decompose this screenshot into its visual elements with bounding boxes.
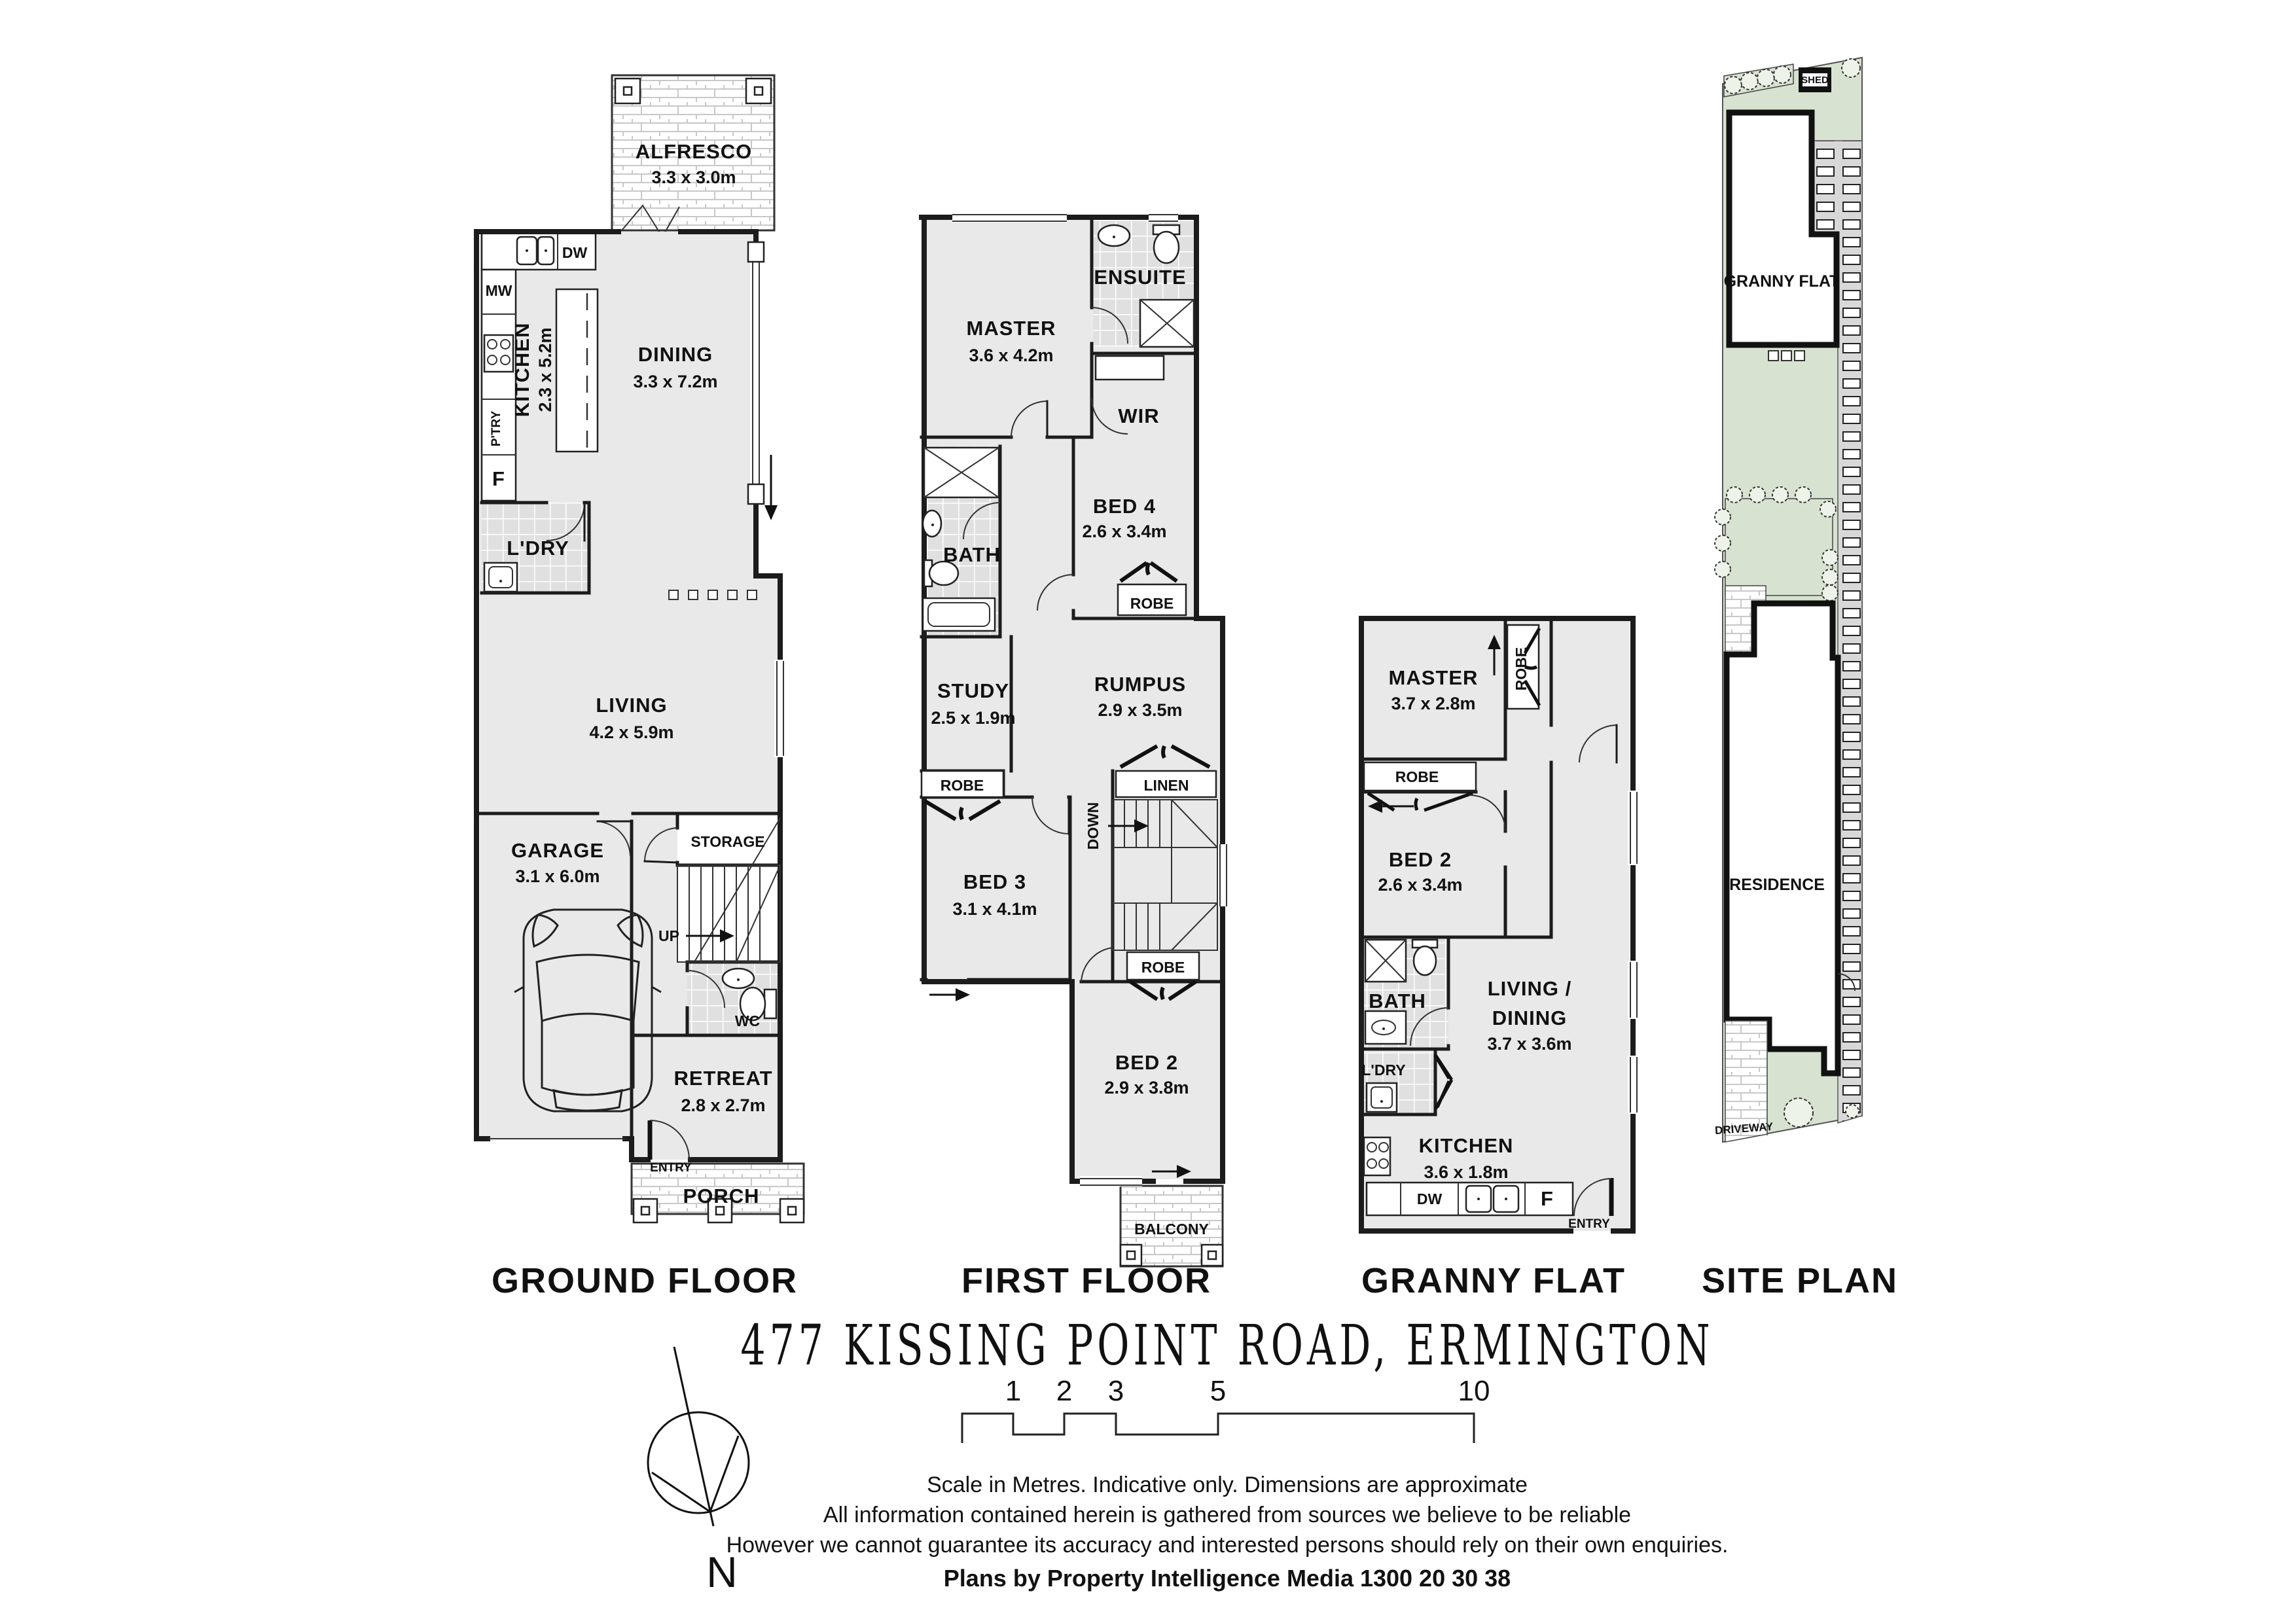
label-site-residence: RESIDENCE [1729, 876, 1825, 894]
room-dims-master: 3.6 x 4.2m [969, 346, 1053, 365]
scale-tick-10: 10 [1458, 1375, 1490, 1407]
room-dims-dining: 3.3 x 7.2m [633, 372, 717, 391]
basin-icon [923, 510, 941, 537]
label-grobe-master: ROBE [1513, 647, 1530, 690]
ground-floor-plan: ALFRESCO 3.3 x 3.0m DW MW KITCHEN 2.3 x … [476, 75, 804, 1300]
room-label-alfresco: ALFRESCO [636, 140, 753, 163]
room-label-ensuite: ENSUITE [1094, 266, 1186, 289]
room-dims-bed4: 2.6 x 3.4m [1082, 522, 1166, 541]
label-fridge: F [492, 467, 505, 490]
label-shed: SHED [1801, 75, 1829, 86]
room-label-gbath: BATH [1369, 990, 1426, 1012]
entry-direction-arrow [764, 455, 778, 520]
island-bench [556, 289, 598, 452]
toilet-icon [1153, 225, 1179, 263]
clothesline [1768, 351, 1804, 361]
label-robe-bed4: ROBE [1130, 595, 1174, 612]
laundry-tub-icon [484, 563, 517, 592]
room-label-master: MASTER [967, 317, 1056, 340]
room-label-wir: WIR [1118, 404, 1159, 427]
page-title: 477 KISSING POINT ROAD, ERMINGTON [740, 1314, 1713, 1378]
window [748, 242, 764, 504]
tree [1846, 1105, 1859, 1118]
ground-floor-title: GROUND FLOOR [492, 1261, 798, 1300]
room-label-living: LIVING [596, 694, 667, 717]
label-storage: STORAGE [691, 833, 764, 850]
disclaimer-line-4: Plans by Property Intelligence Media 130… [944, 1565, 1511, 1592]
granny-flat-title: GRANNY FLAT [1361, 1261, 1626, 1300]
room-dims-kitchen: 2.3 x 5.2m [535, 327, 555, 412]
label-down: DOWN [1085, 802, 1102, 850]
room-dims-garage: 3.1 x 6.0m [515, 866, 600, 886]
room-label-dining: DINING [638, 343, 713, 366]
room-label-gliving1: LIVING / [1488, 977, 1572, 1000]
label-gdw: DW [1417, 1190, 1443, 1207]
room-label-gldry: L'DRY [1361, 1061, 1405, 1079]
label-up: UP [658, 927, 679, 944]
label-wc: WC [735, 1012, 760, 1029]
label-site-granny: GRANNY FLAT [1724, 272, 1840, 291]
room-dims-bed2: 2.9 x 3.8m [1104, 1078, 1189, 1097]
disclaimer-line-3: However we cannot guarantee its accuracy… [726, 1533, 1729, 1558]
sink-icon [517, 237, 554, 264]
room-label-gbed2: BED 2 [1389, 848, 1452, 871]
scale-bar: 1 2 3 5 10 [962, 1375, 1490, 1443]
label-pantry: P'TRY [490, 410, 503, 446]
bathtub-icon [923, 598, 995, 631]
room-label-ldry: L'DRY [507, 537, 569, 560]
room-label-rumpus: RUMPUS [1094, 673, 1186, 696]
floorplan-page: ALFRESCO 3.3 x 3.0m DW MW KITCHEN 2.3 x … [0, 0, 2296, 1623]
label-gentry: ENTRY [1568, 1217, 1610, 1231]
room-label-study: STUDY [937, 679, 1009, 702]
compass: N [648, 1347, 749, 1596]
room-label-garage: GARAGE [511, 839, 604, 862]
first-floor-plan: MASTER 3.6 x 4.2m ENSUITE WIR BATH BED 4… [922, 212, 1228, 1300]
room-label-bath: BATH [943, 543, 1001, 566]
window-arrow [929, 988, 970, 1001]
cooktop-icon [1364, 1137, 1390, 1175]
shed: SHED [1799, 67, 1831, 92]
label-mw: MW [486, 282, 512, 299]
tree [1842, 59, 1860, 77]
room-label-bed2: BED 2 [1115, 1051, 1178, 1074]
room-label-retreat: RETREAT [673, 1067, 772, 1090]
shower-icon [924, 448, 999, 497]
cooktop-icon [484, 335, 513, 372]
toilet-icon [1412, 940, 1437, 975]
disclaimer-line-2: All information contained herein is gath… [823, 1503, 1631, 1527]
site-plan: SHED GRANNY FLAT RESIDENCE [1702, 58, 1898, 1300]
label-robe-bed3: ROBE [941, 777, 984, 794]
room-label-gmaster: MASTER [1389, 666, 1479, 689]
room-dims-gbed2: 2.6 x 3.4m [1378, 875, 1462, 895]
label-dw: DW [562, 244, 588, 261]
label-grobe-bed2: ROBE [1395, 768, 1439, 785]
shower-icon [1140, 300, 1194, 347]
label-robe-bed2: ROBE [1141, 959, 1185, 976]
label-linen: LINEN [1144, 777, 1189, 794]
room-dims-gmaster: 3.7 x 2.8m [1391, 694, 1475, 713]
room-label-bed4: BED 4 [1093, 495, 1156, 518]
room-dims-alfresco: 3.3 x 3.0m [651, 168, 736, 187]
room-dims-gkitchen: 3.6 x 1.8m [1424, 1162, 1508, 1182]
room-dims-retreat: 2.8 x 2.7m [681, 1096, 765, 1115]
scale-tick-5: 5 [1210, 1375, 1226, 1407]
room-label-gliving2: DINING [1492, 1007, 1568, 1029]
first-floor-title: FIRST FLOOR [961, 1261, 1211, 1300]
room-label-kitchen: KITCHEN [511, 323, 533, 418]
floorplan-canvas: ALFRESCO 3.3 x 3.0m DW MW KITCHEN 2.3 x … [0, 0, 2296, 1623]
room-dims-living: 4.2 x 5.9m [589, 722, 673, 742]
room-label-balcony: BALCONY [1134, 1221, 1209, 1238]
room-dims-gliving: 3.7 x 3.6m [1487, 1034, 1571, 1054]
shower-icon [1365, 940, 1406, 982]
tree [1784, 1098, 1813, 1127]
label-gfridge: F [1541, 1187, 1554, 1210]
room-dims-bed3: 3.1 x 4.1m [952, 899, 1037, 919]
garden [1715, 487, 1838, 601]
wir-cabinet [1096, 356, 1164, 380]
room-label-gkitchen: KITCHEN [1419, 1134, 1514, 1157]
scale-tick-3: 3 [1108, 1375, 1124, 1407]
room-label-porch: PORCH [683, 1185, 760, 1207]
scale-tick-2: 2 [1056, 1375, 1072, 1407]
label-entry: ENTRY [650, 1161, 692, 1175]
window [774, 660, 786, 757]
site-residence-building [1727, 603, 1838, 1073]
room-dims-rumpus: 2.9 x 3.5m [1098, 700, 1182, 720]
room-dims-study: 2.5 x 1.9m [931, 708, 1015, 728]
scale-tick-1: 1 [1005, 1375, 1021, 1407]
site-plan-title: SITE PLAN [1702, 1261, 1898, 1300]
room-label-bed3: BED 3 [963, 870, 1026, 893]
granny-flat-plan: MASTER 3.7 x 2.8m ROBE ROBE BED 2 2.6 x … [1361, 618, 1638, 1300]
disclaimer: Scale in Metres. Indicative only. Dimens… [726, 1472, 1729, 1592]
disclaimer-line-1: Scale in Metres. Indicative only. Dimens… [927, 1472, 1528, 1497]
